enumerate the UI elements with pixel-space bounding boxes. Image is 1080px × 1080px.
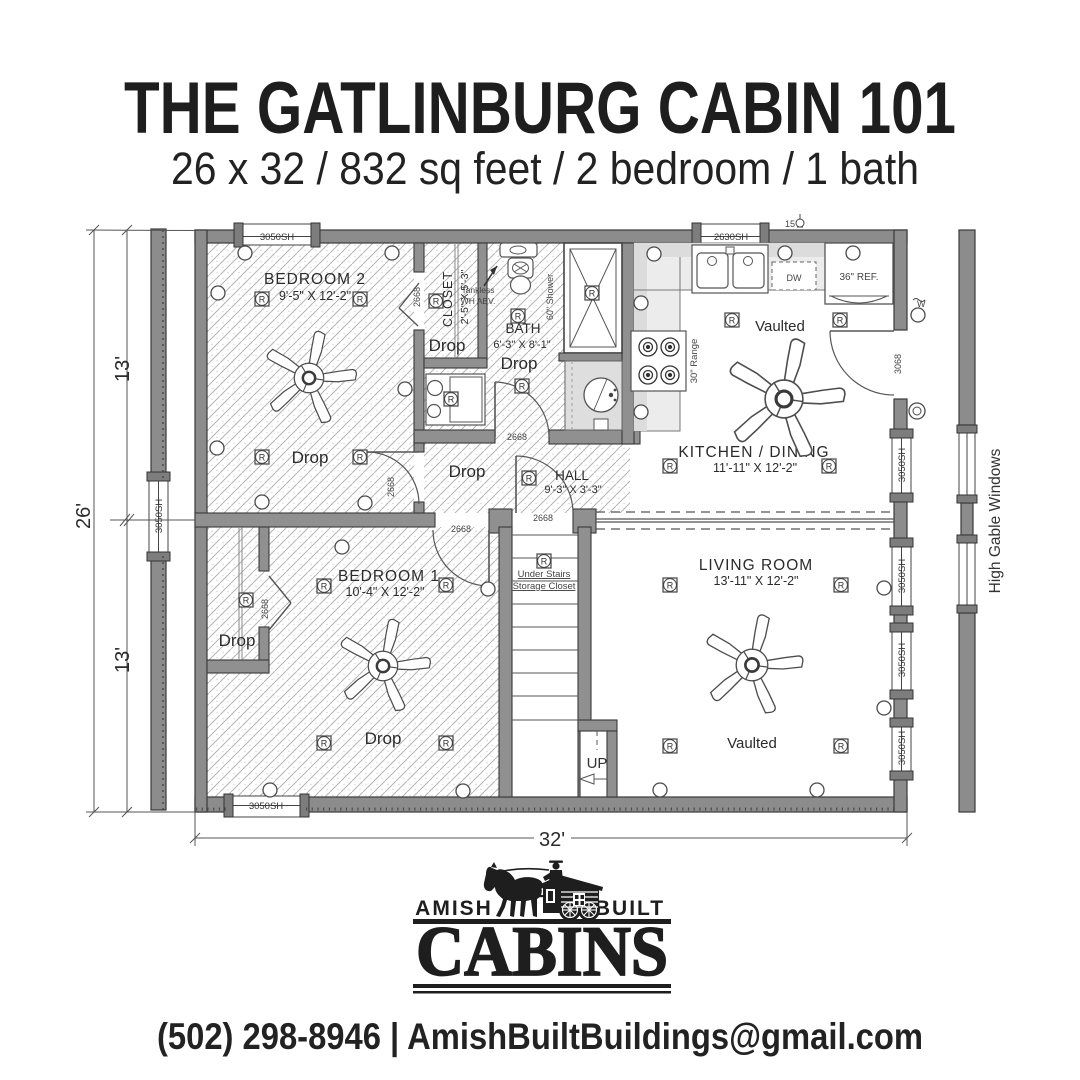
- svg-text:13': 13': [112, 356, 134, 382]
- svg-text:2668: 2668: [533, 513, 553, 523]
- svg-text:Drop: Drop: [365, 729, 402, 748]
- svg-text:30" Range: 30" Range: [689, 339, 700, 384]
- svg-text:26 x 32 / 832 sq feet / 2 bedr: 26 x 32 / 832 sq feet / 2 bedroom / 1 ba…: [171, 143, 919, 194]
- svg-text:Drop: Drop: [429, 336, 466, 355]
- svg-text:3050SH: 3050SH: [154, 499, 165, 533]
- svg-text:HALL: HALL: [555, 468, 589, 483]
- svg-text:BEDROOM 2: BEDROOM 2: [264, 271, 366, 288]
- svg-text:(502) 298-8946 | AmishBuiltBui: (502) 298-8946 | AmishBuiltBuildings@gma…: [157, 1016, 923, 1058]
- svg-text:Drop: Drop: [449, 462, 486, 481]
- svg-text:UP: UP: [587, 755, 608, 772]
- svg-text:60" Shower: 60" Shower: [545, 274, 555, 320]
- svg-text:Drop: Drop: [292, 448, 329, 467]
- svg-text:Drop: Drop: [219, 631, 256, 650]
- svg-text:9'-5" X 12'-2": 9'-5" X 12'-2": [279, 289, 351, 303]
- svg-text:3050SH: 3050SH: [897, 448, 908, 482]
- svg-text:3050SH: 3050SH: [249, 801, 283, 812]
- svg-text:DW: DW: [787, 273, 802, 283]
- svg-text:11'-11" X 12'-2": 11'-11" X 12'-2": [713, 461, 797, 475]
- svg-text:3068: 3068: [893, 354, 903, 374]
- svg-text:LIVING ROOM: LIVING ROOM: [699, 557, 813, 574]
- svg-text:3050SH: 3050SH: [897, 731, 908, 765]
- svg-text:Drop: Drop: [501, 354, 538, 373]
- svg-text:2668: 2668: [412, 287, 422, 307]
- svg-text:CABINS: CABINS: [416, 913, 668, 991]
- svg-text:13': 13': [112, 647, 134, 673]
- svg-text:2630SH: 2630SH: [714, 232, 748, 243]
- svg-text:High Gable Windows: High Gable Windows: [987, 448, 1004, 593]
- svg-text:15: 15: [785, 219, 795, 229]
- svg-text:THE GATLINBURG CABIN 101: THE GATLINBURG CABIN 101: [124, 68, 956, 149]
- svg-text:3050SH: 3050SH: [897, 643, 908, 677]
- svg-text:6'-3" X 8'-1": 6'-3" X 8'-1": [493, 339, 550, 351]
- svg-text:2668: 2668: [386, 477, 396, 497]
- svg-text:36" REF.: 36" REF.: [839, 272, 878, 283]
- svg-text:Under Stairs: Under Stairs: [518, 569, 571, 580]
- svg-text:2668: 2668: [451, 524, 471, 534]
- svg-text:Vaulted: Vaulted: [755, 318, 805, 335]
- svg-text:2668: 2668: [507, 432, 527, 442]
- svg-text:Storage Closet: Storage Closet: [513, 581, 576, 592]
- svg-text:10'-4" X 12'-2": 10'-4" X 12'-2": [346, 585, 425, 599]
- svg-text:BEDROOM 1: BEDROOM 1: [338, 568, 440, 585]
- svg-text:32': 32': [539, 829, 565, 851]
- svg-text:2668: 2668: [260, 599, 270, 619]
- svg-text:3050SH: 3050SH: [897, 559, 908, 593]
- svg-text:26': 26': [73, 503, 95, 529]
- svg-text:Vaulted: Vaulted: [727, 735, 777, 752]
- svg-text:9'-3" X 3'-3": 9'-3" X 3'-3": [544, 484, 601, 496]
- svg-text:2'-5" X 5'-3": 2'-5" X 5'-3": [459, 269, 471, 324]
- svg-text:3050SH: 3050SH: [260, 232, 294, 243]
- svg-text:13'-11" X 12'-2": 13'-11" X 12'-2": [714, 574, 799, 588]
